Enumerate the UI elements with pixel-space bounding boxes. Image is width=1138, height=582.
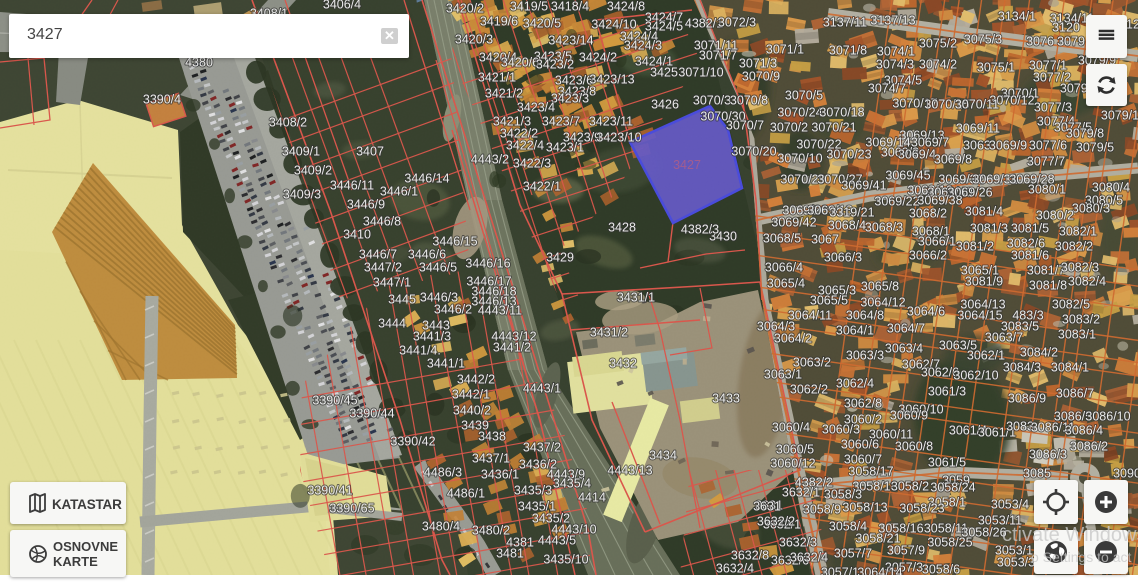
svg-text:OSNOVNE: OSNOVNE [53, 539, 118, 554]
svg-text:KATASTAR: KATASTAR [52, 497, 122, 512]
svg-text:KARTE: KARTE [53, 554, 98, 569]
